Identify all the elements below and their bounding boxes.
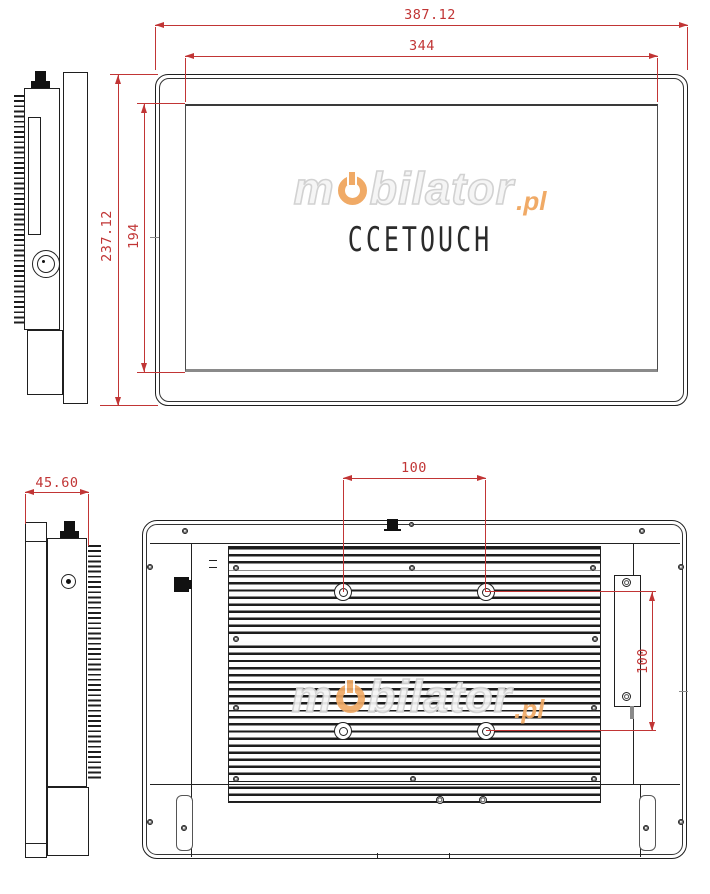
extension-line [486,730,656,731]
screen-logo: CCETOUCH [320,220,520,259]
screw-icon [147,564,153,570]
screw-icon [590,565,596,571]
dim-label-front-outer-width: 387.12 [395,7,465,23]
screw-icon [409,565,415,571]
extension-line [100,405,158,406]
grille-rail [229,705,600,710]
antenna-connector-icon [60,531,79,538]
extension-line [137,103,185,104]
dim-label-front-screen-width: 344 [390,38,454,54]
screw-icon [409,522,414,527]
screw-icon [678,564,684,570]
power-connector-icon [61,574,76,589]
vesa-hole [477,583,495,601]
extension-line [88,494,89,546]
grille-rail [229,636,600,641]
dim-line-front-outer-width [155,25,688,26]
antenna-connector-cap [64,521,75,532]
screw-icon [233,705,239,711]
screw-icon [643,825,649,831]
extension-line [25,494,26,524]
antenna-connector-icon [31,81,50,88]
side-body-lower [47,787,89,856]
bezel-seam [26,843,46,844]
extension-line [657,58,658,102]
extension-line [155,27,156,70]
vesa-hole [334,722,352,740]
screw-icon [181,825,187,831]
antenna-connector-base [384,529,401,531]
dim-label-vesa-horizontal: 100 [379,460,449,476]
side-body-lower [27,330,63,395]
technical-drawing: m bilator .pl CCETOUCH 387.12 344 237.12… [0,0,710,894]
side-bezel [63,72,88,404]
edge-mark [377,853,378,859]
bezel-seam [26,541,46,542]
screw-icon [678,819,684,825]
power-connector-icon [32,250,60,278]
dim-line-front-screen-height [144,104,145,372]
extension-line [687,27,688,70]
rear-bottom-seam [150,784,680,785]
panel-tab [630,706,634,719]
screw-icon [479,796,487,804]
center-mark [679,691,688,692]
vent-dash [209,567,217,568]
extension-line [486,591,656,592]
heatsink-fins [88,545,101,782]
antenna-connector-cap [35,71,46,82]
dim-label-front-screen-height: 194 [126,216,142,256]
extension-line [137,372,185,373]
io-connector-icon [174,577,189,592]
ventilation-grille [228,546,601,803]
screw-icon [622,578,631,587]
vesa-hole [477,722,495,740]
screw-icon [410,776,416,782]
side-bezel [25,522,47,858]
mount-slot [176,795,193,851]
screw-icon [182,528,188,534]
screw-icon [233,776,239,782]
extension-line [343,480,344,592]
extension-line [185,58,186,102]
extension-line [110,74,158,75]
rear-top-seam [150,543,680,544]
dim-line-front-outer-height [118,75,119,406]
dim-label-front-outer-height: 237.12 [99,206,115,266]
side-recess [28,117,41,235]
screw-icon [591,776,597,782]
dim-label-vesa-vertical: 100 [635,641,651,681]
screw-icon [147,819,153,825]
edge-mark [449,853,450,859]
mount-slot [639,795,656,851]
dim-line-front-screen-width [185,56,658,57]
dim-line-vesa-vertical [652,592,653,731]
dim-label-side-depth: 45.60 [20,475,94,491]
extension-line [485,480,486,592]
center-mark [150,237,159,238]
dim-line-side-depth [25,492,89,493]
screw-icon [592,636,598,642]
screw-icon [639,528,645,534]
dim-line-vesa-horizontal [343,478,486,479]
io-connector-tip [188,580,192,589]
screw-icon [591,705,597,711]
screw-icon [436,796,444,804]
vent-dash [209,560,217,561]
screw-icon [233,636,239,642]
screw-icon [622,692,631,701]
screw-icon [233,565,239,571]
